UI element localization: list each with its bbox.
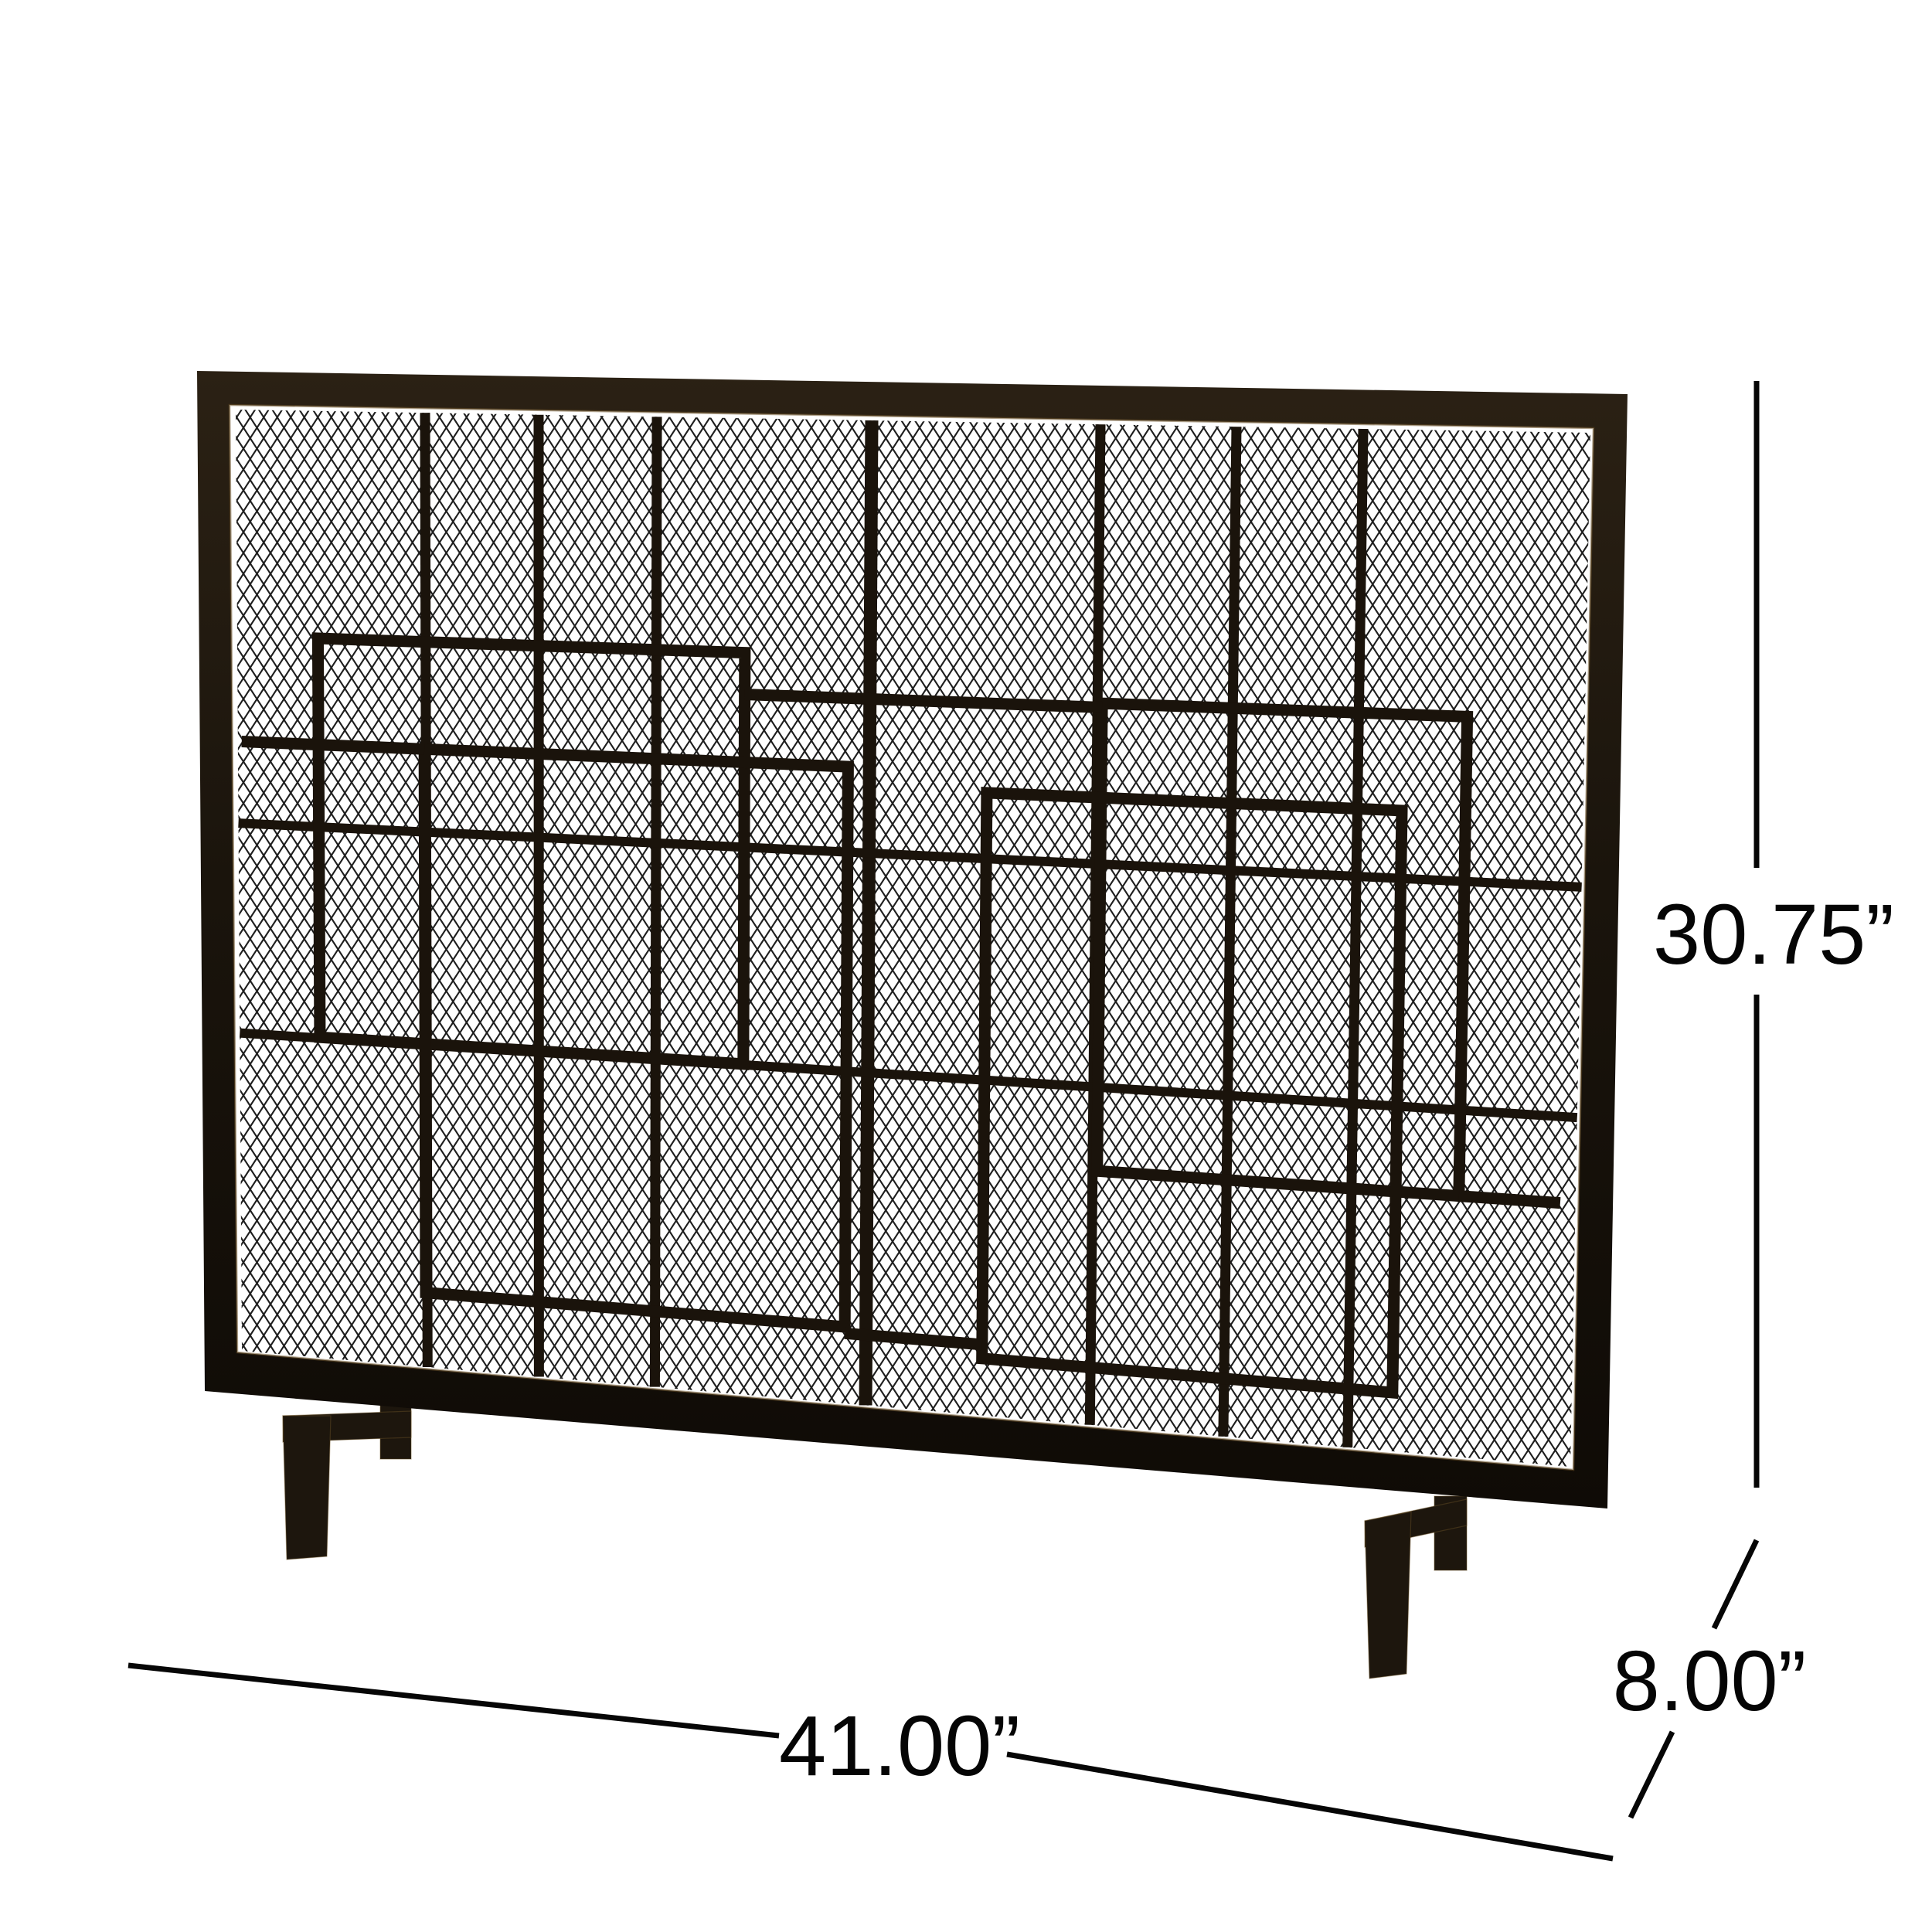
vertical-bar bbox=[866, 420, 872, 1405]
fireplace-screen-dimension-diagram: 30.75” 8.00” 41.00” bbox=[0, 0, 1932, 1932]
depth-dimension-line bbox=[1714, 1540, 1757, 1628]
fireplace-screen bbox=[197, 371, 1628, 1679]
depth-dimension-line bbox=[1631, 1732, 1672, 1818]
vertical-bar bbox=[655, 417, 657, 1386]
width-dimension-line bbox=[128, 1665, 779, 1736]
depth-dimension-label: 8.00” bbox=[1613, 1634, 1807, 1729]
right-foot-front-leg bbox=[1365, 1512, 1411, 1679]
left-foot-front-leg bbox=[283, 1416, 331, 1560]
motif-stub-bar bbox=[1459, 1196, 1560, 1203]
mesh-panel bbox=[236, 410, 1590, 1467]
product-dimension-image: 30.75” 8.00” 41.00” bbox=[0, 0, 1932, 1932]
motif-stub-bar bbox=[242, 742, 424, 750]
height-dimension-label: 30.75” bbox=[1653, 887, 1894, 982]
width-dimension-label: 41.00” bbox=[779, 1699, 1020, 1794]
width-dimension-line bbox=[1007, 1754, 1613, 1859]
